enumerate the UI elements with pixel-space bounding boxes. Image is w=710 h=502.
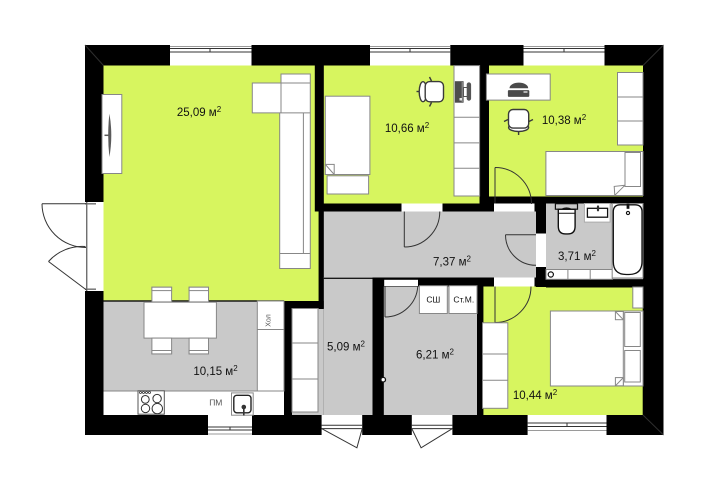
svg-text:СШ: СШ (426, 295, 440, 305)
svg-text:25,09 м2: 25,09 м2 (177, 105, 222, 119)
svg-text:5,09 м2: 5,09 м2 (327, 340, 365, 354)
svg-text:3,71 м2: 3,71 м2 (558, 249, 596, 263)
svg-text:10,44 м2: 10,44 м2 (513, 388, 558, 402)
svg-text:Хол: Хол (266, 314, 273, 326)
svg-text:10,15 м2: 10,15 м2 (193, 364, 238, 378)
svg-text:7,37 м2: 7,37 м2 (433, 255, 471, 269)
svg-text:Ст.М.: Ст.М. (453, 295, 474, 305)
svg-text:10,38 м2: 10,38 м2 (542, 113, 587, 127)
svg-text:6,21 м2: 6,21 м2 (416, 348, 454, 362)
svg-text:10,66 м2: 10,66 м2 (385, 121, 430, 135)
svg-text:ПМ: ПМ (209, 398, 222, 408)
